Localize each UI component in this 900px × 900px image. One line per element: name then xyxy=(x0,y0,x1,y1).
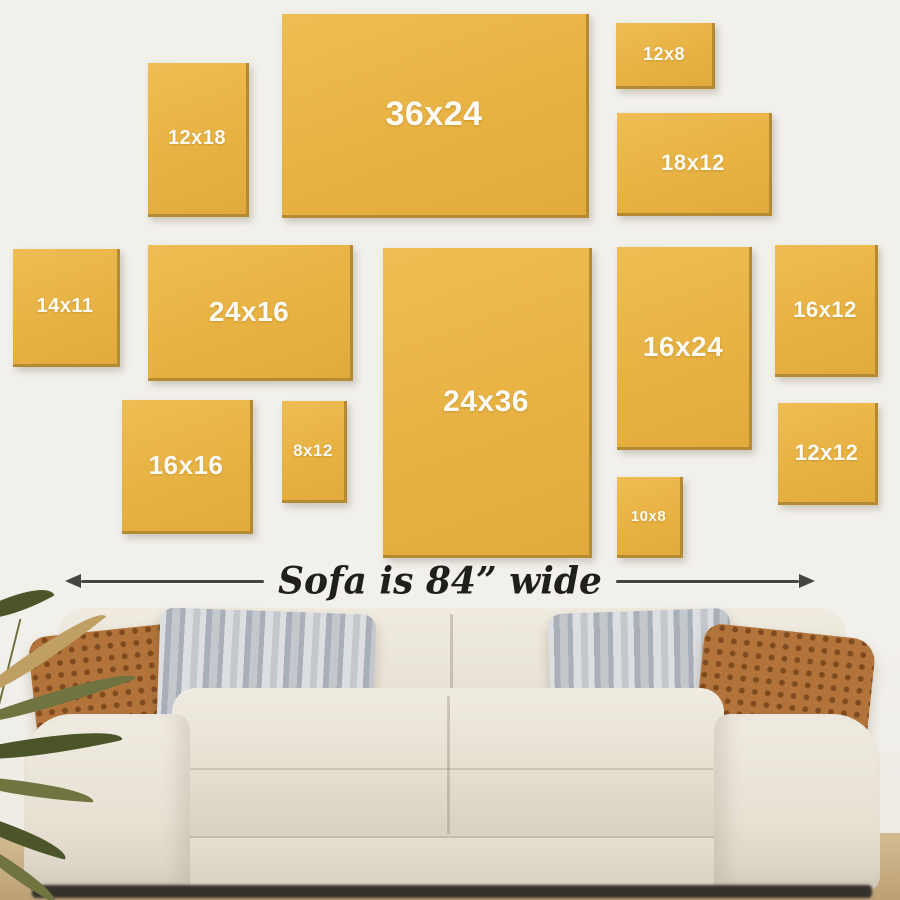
frame-18x12: 18x12 xyxy=(617,113,772,216)
frame-16x12: 16x12 xyxy=(775,245,878,377)
frame-12x8: 12x8 xyxy=(616,23,715,89)
frame-size-label: 16x24 xyxy=(643,331,723,363)
frame-size-label: 12x12 xyxy=(795,440,859,466)
frame-size-label: 36x24 xyxy=(385,95,482,134)
frame-size-label: 12x18 xyxy=(168,127,226,150)
frame-size-label: 24x16 xyxy=(209,296,289,328)
arrowhead-left-icon xyxy=(65,574,81,588)
frame-size-label: 16x16 xyxy=(149,450,224,481)
frame-size-label: 8x12 xyxy=(293,441,333,461)
width-arrow-line-left xyxy=(81,580,264,583)
frame-size-label: 24x36 xyxy=(443,385,529,419)
sofa-seat-seam xyxy=(447,696,450,834)
frames-layer: 12x1836x2412x818x1214x1124x1624x3616x241… xyxy=(0,0,900,620)
frame-size-label: 18x12 xyxy=(661,150,725,176)
size-guide-scene: 12x1836x2412x818x1214x1124x1624x3616x241… xyxy=(0,0,900,900)
frame-14x11: 14x11 xyxy=(13,249,120,367)
frame-24x16: 24x16 xyxy=(148,245,353,381)
frame-size-label: 16x12 xyxy=(793,297,857,323)
frame-12x18: 12x18 xyxy=(148,63,249,217)
sofa-width-annotation: Sofa is 84” wide xyxy=(65,557,815,605)
frame-16x24: 16x24 xyxy=(617,247,752,450)
sofa-arm-right xyxy=(714,714,880,892)
frame-size-label: 10x8 xyxy=(631,508,666,525)
frame-size-label: 14x11 xyxy=(36,295,93,318)
sofa-arm-left xyxy=(24,714,190,892)
frame-8x12: 8x12 xyxy=(282,401,347,503)
sofa-seat-crease xyxy=(185,768,713,770)
width-arrow-line-right xyxy=(616,580,799,583)
frame-size-label: 12x8 xyxy=(643,44,685,65)
frame-36x24: 36x24 xyxy=(282,14,589,218)
arrowhead-right-icon xyxy=(799,574,815,588)
frame-12x12: 12x12 xyxy=(778,403,878,505)
sofa-width-label: Sofa is 84” wide xyxy=(278,562,602,600)
frame-24x36: 24x36 xyxy=(383,248,592,558)
sofa-under-shadow xyxy=(32,885,872,898)
frame-10x8: 10x8 xyxy=(617,477,683,558)
frame-16x16: 16x16 xyxy=(122,400,253,534)
